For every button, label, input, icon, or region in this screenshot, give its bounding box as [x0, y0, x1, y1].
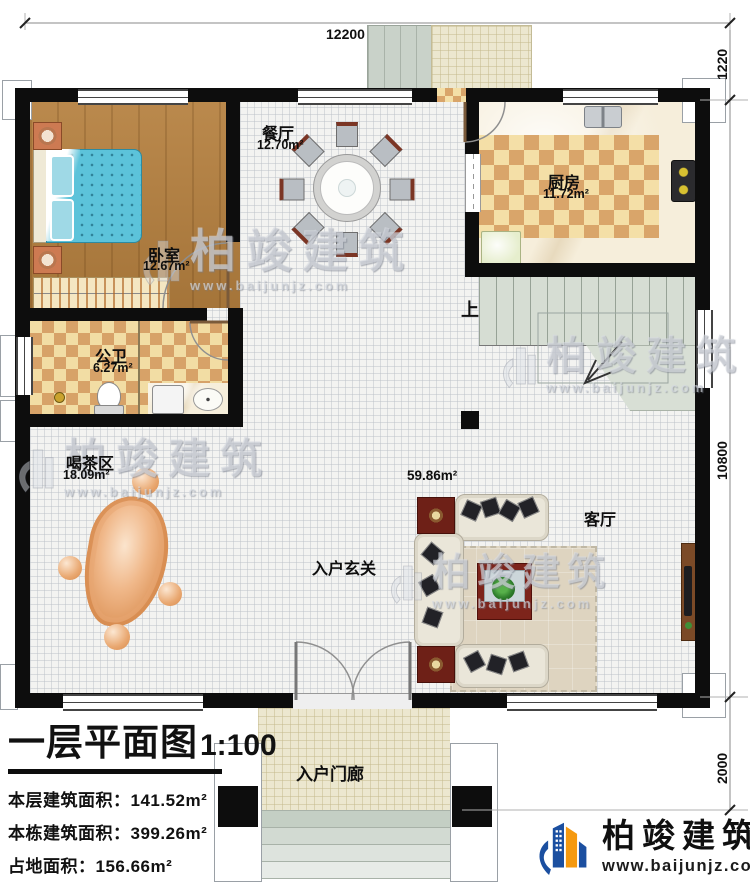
dim-top: 12200 — [326, 26, 365, 42]
wall-right — [695, 88, 710, 694]
washing-machine — [152, 385, 184, 414]
tea-stool — [132, 468, 159, 495]
bedroom-area: 12.67m² — [143, 259, 190, 273]
dim-right-upper: 1220 — [714, 49, 730, 80]
kitchen-fridge — [481, 231, 521, 266]
bed-pillow-2 — [50, 199, 74, 241]
wall-bath-bottom — [15, 414, 243, 427]
title-underline — [8, 769, 222, 774]
plan-scale: 1:100 — [200, 729, 277, 763]
tea-stool — [58, 556, 82, 580]
window-bottom-right — [507, 694, 657, 711]
brand-logo-icon — [536, 816, 592, 878]
stat-value: 141.52m² — [131, 791, 208, 810]
tea-area: 18.09m² — [63, 468, 110, 482]
wall-bedroom-dining — [226, 100, 240, 242]
dining-table-center — [338, 179, 356, 197]
living-area: 59.86m² — [407, 468, 457, 483]
wall-bath-right — [228, 308, 243, 427]
bed-pillow-1 — [50, 155, 74, 197]
porch-label: 入户门廊 — [296, 760, 364, 785]
stat-building-area: 本栋建筑面积：399.26m² — [8, 819, 277, 844]
window-bedroom-top — [78, 89, 188, 105]
tea-stool — [104, 624, 130, 650]
column — [461, 411, 479, 429]
dining-chair — [336, 122, 358, 147]
basin — [193, 388, 223, 411]
stat-floor-area: 本层建筑面积：141.52m² — [8, 786, 277, 811]
back-landing — [431, 25, 532, 90]
dining-chair — [280, 179, 305, 201]
end-table-top — [417, 497, 455, 534]
stat-label: 占地面积： — [8, 857, 96, 876]
wall-kitchen-left-upper — [465, 102, 479, 154]
living-label: 客厅 — [584, 506, 616, 530]
floor-drain — [54, 392, 65, 403]
bathroom-divider — [138, 321, 140, 414]
window-stairs-right — [696, 310, 713, 388]
end-table-bottom — [417, 646, 455, 683]
brand-name: 柏竣建筑 — [602, 818, 750, 854]
dining-chair — [336, 232, 358, 257]
kitchen-sink — [584, 106, 622, 128]
kitchen-area: 11.72m² — [543, 187, 589, 201]
stat-label: 本栋建筑面积： — [8, 824, 131, 843]
porch-column-right — [452, 786, 492, 827]
dining-chair — [390, 179, 415, 201]
bathroom-area: 6.27m² — [93, 361, 133, 375]
info-block: 一层平面图 1:100 本层建筑面积：141.52m² 本栋建筑面积：399.2… — [8, 712, 277, 888]
foyer-label: 入户玄关 — [312, 555, 376, 579]
tv-screen — [684, 566, 692, 616]
stat-footprint-area: 占地面积：156.66m² — [8, 852, 277, 877]
stat-value: 156.66m² — [96, 857, 173, 876]
plan-title: 一层平面图 — [8, 712, 198, 766]
tv-plant — [685, 622, 692, 629]
brand-footer: 柏竣建筑 www.baijunjz.com — [536, 816, 750, 878]
floor-plan-canvas: 12200 1220 10800 2000 卧室 12.67m² 餐厅 12.7… — [0, 0, 750, 888]
stairs-up-label: 上 — [461, 296, 479, 322]
wall-bedroom-bath — [15, 308, 207, 321]
window-kitchen-top — [563, 89, 658, 105]
nightstand-bottom — [33, 246, 62, 274]
window-dining-top — [298, 89, 412, 105]
tea-stool — [158, 582, 182, 606]
stat-value: 399.26m² — [131, 824, 208, 843]
dim-right-middle: 10800 — [714, 441, 730, 480]
window-bath-left — [16, 337, 33, 395]
kitchen-door-gap-floor — [437, 88, 466, 102]
dining-area: 12.70m² — [257, 138, 304, 152]
kitchen-stove — [671, 160, 696, 202]
stat-label: 本层建筑面积： — [8, 791, 131, 810]
brand-url: www.baijunjz.com — [602, 857, 750, 876]
nightstand-top — [33, 122, 62, 150]
window-bottom-left — [63, 694, 203, 711]
wall-kitchen-bottom — [465, 263, 710, 277]
back-steps — [367, 25, 433, 90]
stairs-treads — [479, 277, 695, 346]
coffee-table-plant — [492, 577, 515, 600]
dim-right-lower: 2000 — [714, 753, 730, 784]
wall-left — [15, 88, 30, 708]
entry-door-gap — [293, 693, 412, 709]
kitchen-sliding-opening — [465, 154, 481, 212]
plan-title-row: 一层平面图 1:100 — [8, 712, 277, 766]
wardrobe — [33, 277, 170, 310]
